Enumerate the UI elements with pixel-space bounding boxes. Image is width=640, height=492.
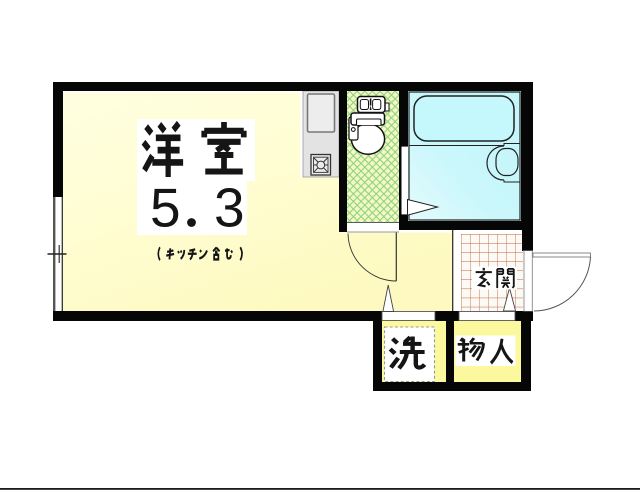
- svg-text:5: 5: [150, 177, 181, 239]
- svg-text:3: 3: [214, 177, 245, 239]
